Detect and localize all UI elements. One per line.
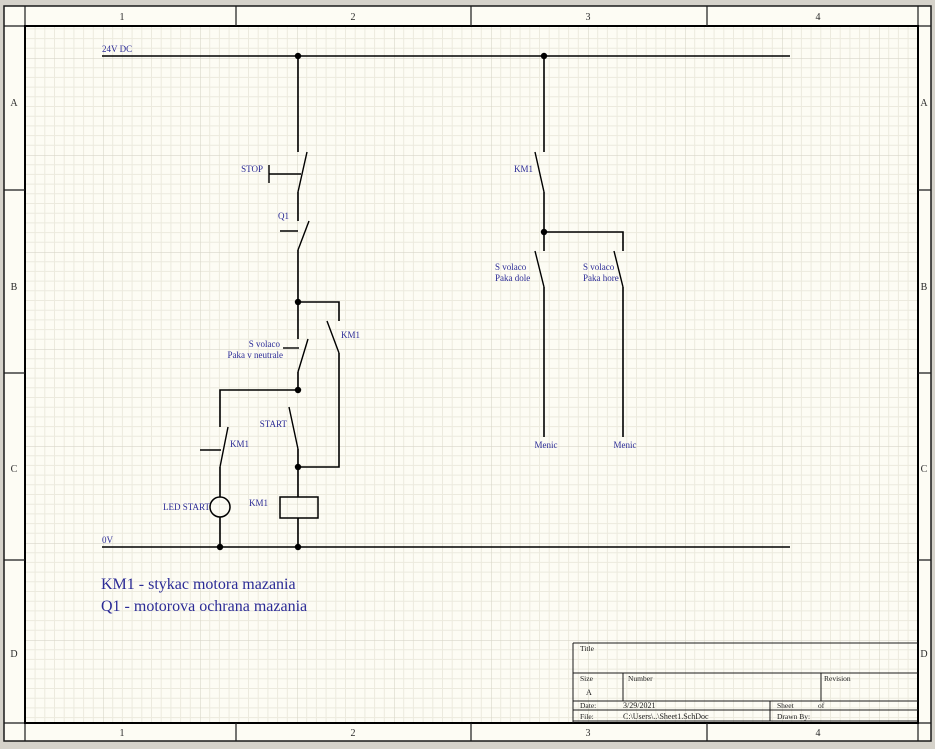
junction-dot	[541, 229, 547, 235]
titleblock-drawnby-label: Drawn By:	[777, 712, 810, 721]
ruler-top-col-2: 2	[351, 12, 356, 23]
label-km1-latch[interactable]: KM1	[341, 330, 360, 340]
ruler-bottom-col-3: 3	[586, 728, 591, 739]
ruler-right-row-b: B	[921, 282, 928, 293]
junction-dot	[295, 464, 301, 470]
ruler-left-row-a: A	[10, 98, 18, 109]
junction-dot	[541, 53, 547, 59]
label-km1-right[interactable]: KM1	[514, 164, 533, 174]
ruler-top-col-4: 4	[816, 12, 821, 23]
label-svolaco-neutral-1[interactable]: S volaco	[249, 339, 281, 349]
junction-dot	[295, 544, 301, 550]
schematic-editor-canvas: 1 2 3 4 1 2 3 4 A B C D A B C D	[0, 0, 935, 744]
net-label-0v[interactable]: 0V	[102, 535, 114, 545]
ruler-bottom-col-2: 2	[351, 728, 356, 739]
annotation-q1[interactable]: Q1 - motorova ochrana mazania	[101, 598, 307, 615]
label-start[interactable]: START	[260, 419, 288, 429]
junction-dot	[295, 387, 301, 393]
schematic-sheet: 1 2 3 4 1 2 3 4 A B C D A B C D	[0, 0, 935, 744]
titleblock-file-value[interactable]: C:\Users\..\Sheet1.SchDoc	[623, 712, 709, 721]
titleblock-sheet-label: Sheet	[777, 701, 795, 710]
label-svolaco-dole-2[interactable]: Paka dole	[495, 273, 530, 283]
ruler-left-row-d: D	[10, 649, 17, 660]
label-svolaco-hore-1[interactable]: S volaco	[583, 262, 615, 272]
titleblock-file-label: File:	[580, 712, 594, 721]
label-svolaco-hore-2[interactable]: Paka hore	[583, 273, 619, 283]
sheet-grid	[25, 26, 918, 723]
titleblock-title-label: Title	[580, 644, 595, 653]
label-km1-aux[interactable]: KM1	[230, 439, 249, 449]
titleblock-size-label: Size	[580, 674, 594, 683]
titleblock-date-label: Date:	[580, 701, 596, 710]
net-label-menic-right[interactable]: Menic	[614, 440, 637, 450]
label-svolaco-dole-1[interactable]: S volaco	[495, 262, 527, 272]
titleblock-size-value[interactable]: A	[586, 688, 592, 697]
ruler-bottom-col-4: 4	[816, 728, 821, 739]
label-q1[interactable]: Q1	[278, 211, 289, 221]
label-stop[interactable]: STOP	[241, 164, 263, 174]
junction-dot	[217, 544, 223, 550]
titleblock-of-label: of	[818, 701, 825, 710]
label-svolaco-neutral-2[interactable]: Paka v neutrale	[228, 350, 283, 360]
junction-dot	[295, 53, 301, 59]
ruler-top-col-3: 3	[586, 12, 591, 23]
titleblock-revision-label: Revision	[824, 674, 851, 683]
net-label-24vdc[interactable]: 24V DC	[102, 44, 132, 54]
ruler-left-row-b: B	[11, 282, 18, 293]
ruler-left-row-c: C	[11, 464, 18, 475]
ruler-right-row-d: D	[920, 649, 927, 660]
ruler-top-col-1: 1	[120, 12, 125, 23]
net-label-menic-left[interactable]: Menic	[535, 440, 558, 450]
label-led-start[interactable]: LED START	[163, 502, 210, 512]
titleblock-date-value[interactable]: 3/29/2021	[623, 701, 655, 710]
titleblock-number-label: Number	[628, 674, 653, 683]
ruler-bottom-col-1: 1	[120, 728, 125, 739]
ruler-right-row-a: A	[920, 98, 928, 109]
junction-dot	[295, 299, 301, 305]
ruler-right-row-c: C	[921, 464, 928, 475]
annotation-km1[interactable]: KM1 - stykac motora mazania	[101, 576, 296, 593]
label-km1-coil[interactable]: KM1	[249, 498, 268, 508]
